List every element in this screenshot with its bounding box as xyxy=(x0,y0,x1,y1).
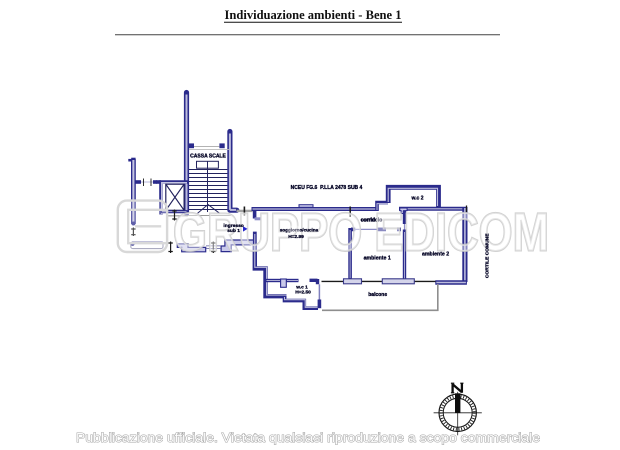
svg-text:corrid: corrid xyxy=(361,218,375,224)
svg-text:H=2.99: H=2.99 xyxy=(288,234,304,240)
svg-text:CORTILE COMUNE: CORTILE COMUNE xyxy=(484,233,490,278)
svg-text:NCEU FG.6 P.LLA 2478 SUB 4: NCEU FG.6 P.LLA 2478 SUB 4 xyxy=(291,185,363,191)
svg-text:w.c 2: w.c 2 xyxy=(410,196,423,202)
svg-text:sub 1: sub 1 xyxy=(227,228,240,234)
svg-text:balcone: balcone xyxy=(368,292,387,298)
svg-text:w.c 1: w.c 1 xyxy=(295,285,308,291)
svg-text:ambiente 2: ambiente 2 xyxy=(422,252,449,258)
svg-text:Individuazione ambienti - Bene: Individuazione ambienti - Bene 1 xyxy=(225,7,402,22)
svg-text:CASSA SCALE: CASSA SCALE xyxy=(190,154,226,160)
svg-text:ambiente 1: ambiente 1 xyxy=(364,256,391,262)
svg-text:Pubblicazione ufficiale. Vieta: Pubblicazione ufficiale. Vietata qualsia… xyxy=(76,430,540,445)
svg-text:H=2.50: H=2.50 xyxy=(295,290,311,296)
